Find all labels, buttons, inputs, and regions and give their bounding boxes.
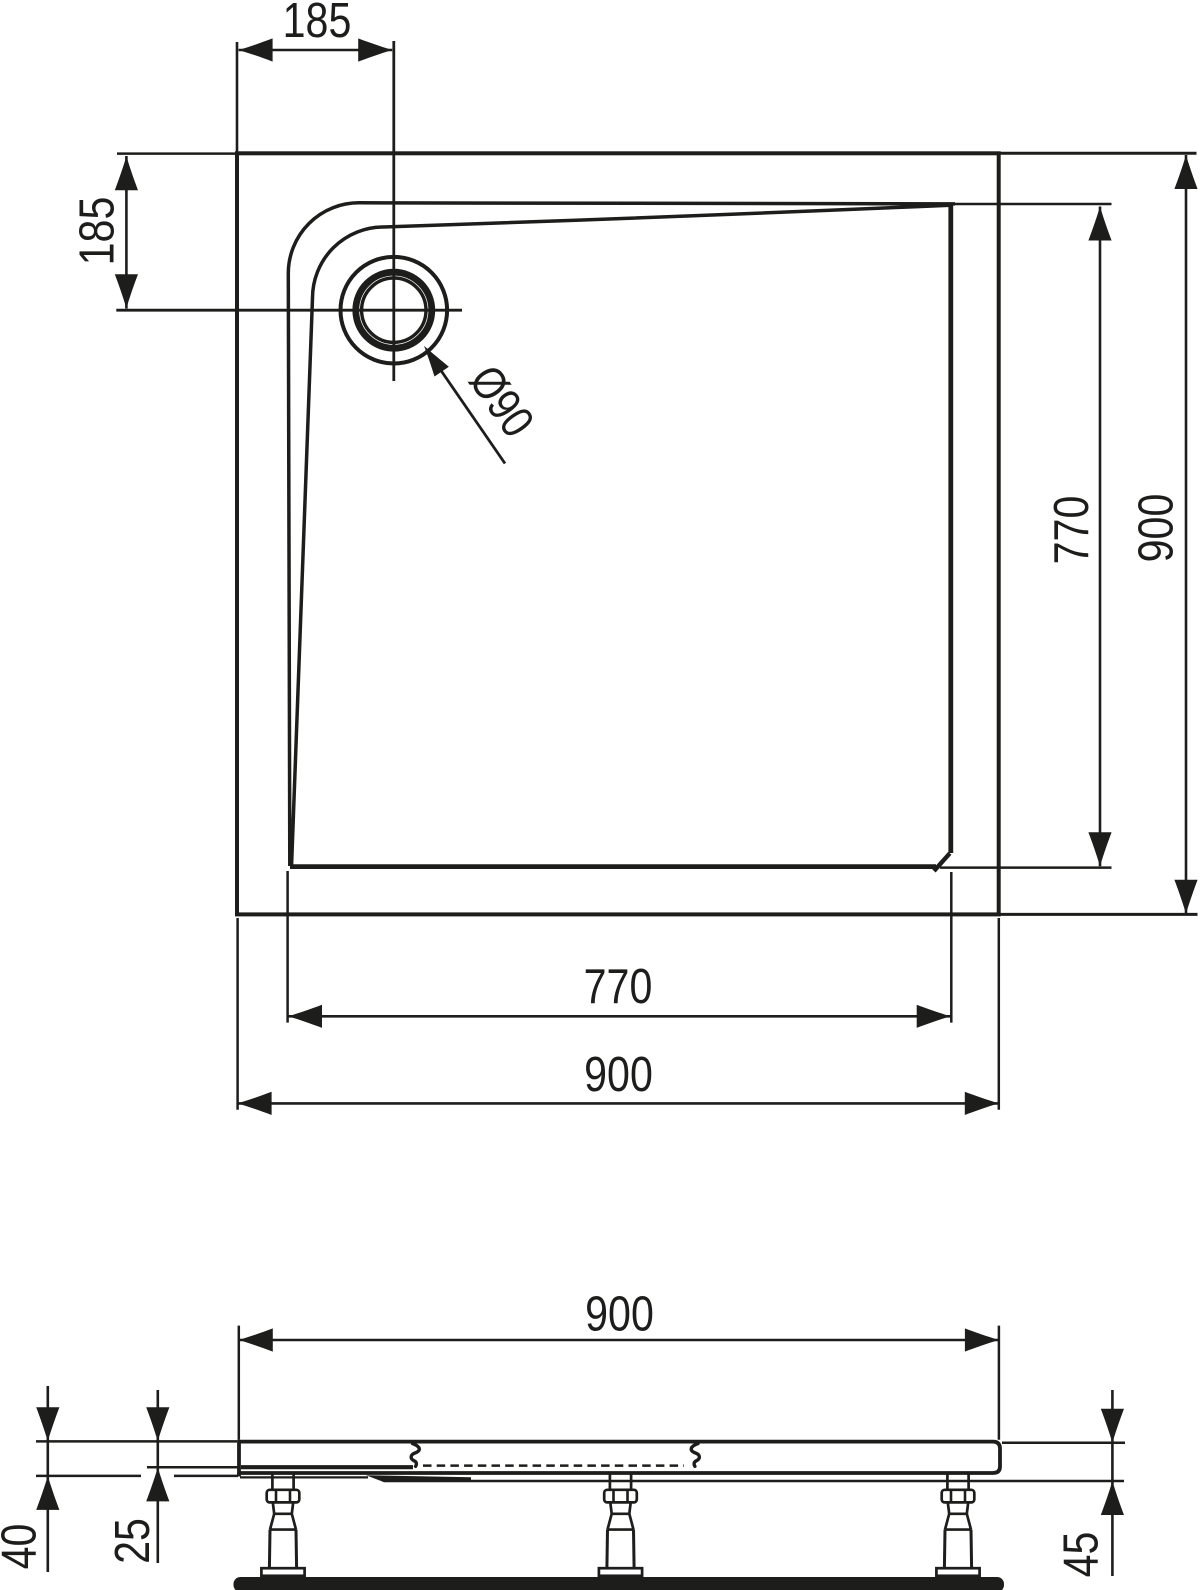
- svg-text:900: 900: [584, 1047, 653, 1102]
- svg-text:185: 185: [69, 197, 124, 266]
- svg-text:900: 900: [1128, 494, 1183, 563]
- svg-text:25: 25: [104, 1518, 159, 1564]
- svg-text:40: 40: [0, 1524, 46, 1570]
- svg-text:770: 770: [1044, 496, 1099, 565]
- svg-text:185: 185: [283, 0, 352, 48]
- svg-text:45: 45: [1053, 1532, 1108, 1578]
- svg-text:900: 900: [585, 1286, 654, 1341]
- svg-text:770: 770: [584, 959, 653, 1014]
